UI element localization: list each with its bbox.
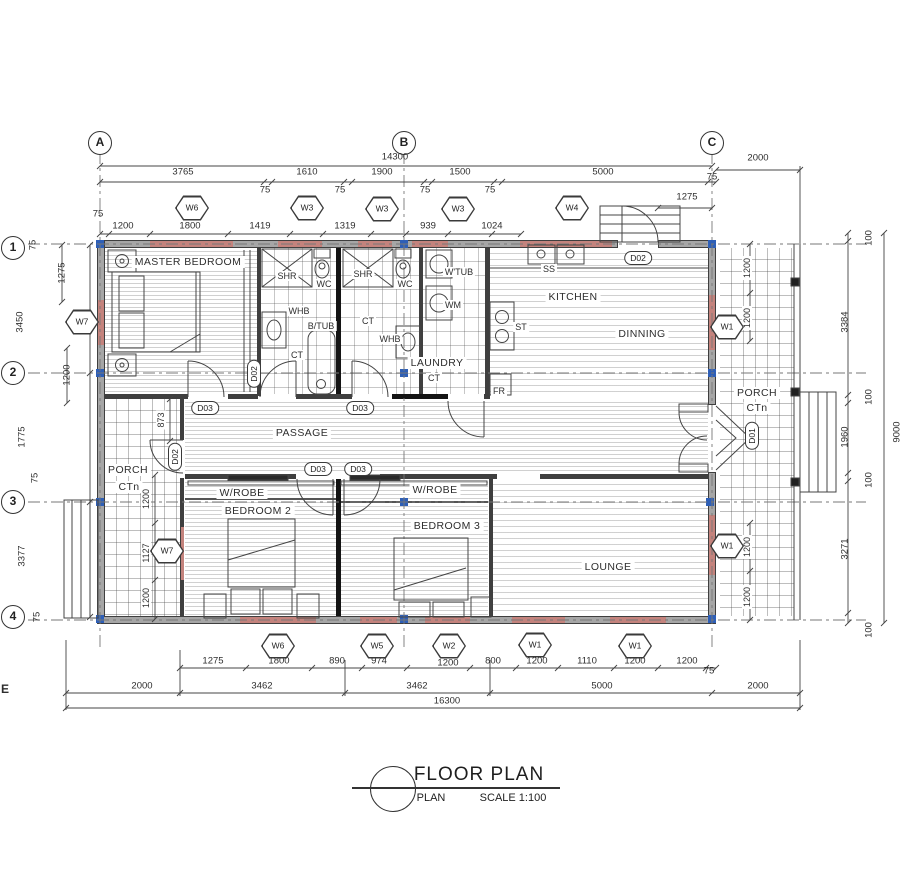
dim-label: 75 <box>28 240 39 251</box>
grid-bubble-4: 4 <box>1 605 25 629</box>
room-label-wrobe3: W/ROBE <box>410 484 461 496</box>
room-label-dinning: DINNING <box>615 328 668 340</box>
fixture-label-whb2: WHB <box>378 334 403 344</box>
dim-label: 1275 <box>57 262 68 283</box>
dim-label: 75 <box>485 185 496 196</box>
entry-steps-top <box>600 206 680 242</box>
kitchen-fixtures <box>490 245 708 395</box>
dim-label: 1200 <box>62 364 73 385</box>
dim-label: 14300 <box>382 152 408 163</box>
dim-label: 1275 <box>202 656 223 667</box>
dim-label: 3377 <box>17 545 28 566</box>
window-tag-w7-left: W7 <box>65 310 99 335</box>
dim-label: 1419 <box>249 221 270 232</box>
fixture-label-wm: WM <box>443 300 463 310</box>
dim-label: 100 <box>864 472 875 488</box>
fixture-label-laundry-ct: CT <box>426 373 442 383</box>
dim-label: 75 <box>93 209 104 220</box>
door-tag-d03-bath: D03 <box>346 401 374 415</box>
dim-label: 1275 <box>676 192 697 203</box>
dim-label: 75 <box>704 666 715 677</box>
dim-label: 75 <box>335 185 346 196</box>
dim-label: 2000 <box>131 681 152 692</box>
dim-label: 5000 <box>592 167 613 178</box>
room-label-passage: PASSAGE <box>273 427 331 439</box>
dim-label: 3384 <box>840 311 851 332</box>
window-tag-w6-top: W6 <box>175 196 209 221</box>
window-tag-w2-bottom: W2 <box>432 634 466 659</box>
dim-label: 1319 <box>334 221 355 232</box>
dim-label: 9000 <box>892 421 903 442</box>
dim-label: 1200 <box>141 586 151 610</box>
fixture-label-st: ST <box>513 322 529 332</box>
fixture-label-wc2: WC <box>396 279 415 289</box>
room-label-bedroom3: BEDROOM 3 <box>411 520 484 532</box>
dim-label: 3271 <box>840 538 851 559</box>
drawing-title: FLOOR PLAN <box>414 764 544 786</box>
window-tag-w1-right-upper: W1 <box>710 315 744 340</box>
fixture-label-fr: FR <box>491 386 507 396</box>
window-tag-label: W3 <box>441 197 475 222</box>
window-tag-label: W6 <box>175 196 209 221</box>
dim-label: 100 <box>864 622 875 638</box>
window-tag-w1a-bottom: W1 <box>518 633 552 658</box>
dim-label: 100 <box>864 230 875 246</box>
door-tag-d03-bedroom2: D03 <box>304 462 332 476</box>
room-label-laundry: LAUNDRY <box>408 357 467 369</box>
door-tag-d03-bedroom3: D03 <box>344 462 372 476</box>
grid-bubble-2: 2 <box>1 361 25 385</box>
window-tag-w3c-top: W3 <box>441 197 475 222</box>
dim-label: 1200 <box>676 656 697 667</box>
dim-label: 75 <box>30 473 41 484</box>
title-underline <box>352 787 560 789</box>
grid-bubble-c: C <box>700 131 724 155</box>
steps-left <box>64 500 98 618</box>
door-tag-d03-master: D03 <box>191 401 219 415</box>
dim-label: 2000 <box>747 681 768 692</box>
grid-bubble-1: 1 <box>1 236 25 260</box>
dim-label: 1610 <box>296 167 317 178</box>
door-tag-d02-entry: D02 <box>624 251 652 265</box>
dim-label: 1200 <box>742 585 752 609</box>
window-tag-label: W2 <box>432 634 466 659</box>
room-label-master-bedroom: MASTER BEDROOM <box>132 256 245 268</box>
drawing-layer <box>0 0 918 880</box>
drawing-scale: SCALE 1:100 <box>480 792 547 804</box>
dim-label: 3450 <box>15 311 26 332</box>
window-tag-w1-right-lower: W1 <box>710 534 744 559</box>
dim-label: 2000 <box>747 153 768 164</box>
edge-label-e: E <box>1 682 9 696</box>
window-tag-label: W7 <box>150 539 184 564</box>
dim-label: 873 <box>156 410 166 429</box>
fixture-label-ct1: CT <box>289 350 305 360</box>
window-tag-w7-porch: W7 <box>150 539 184 564</box>
door-tag-d02-porch: D02 <box>168 443 182 471</box>
dim-label: 1110 <box>577 656 597 667</box>
steps-right <box>800 392 836 492</box>
dimension-lines <box>59 163 887 711</box>
dim-label: 1024 <box>481 221 502 232</box>
room-label-porch-right-ctn: CTn <box>743 402 770 414</box>
dim-label: 1200 <box>112 221 133 232</box>
dimension-ticks <box>59 163 887 711</box>
fixture-label-shr1: SHR <box>275 271 298 281</box>
fixture-label-shr2: SHR <box>351 269 374 279</box>
dim-label: 3765 <box>172 167 193 178</box>
bedroom2-bed <box>204 519 319 618</box>
dim-label: 1900 <box>371 167 392 178</box>
dim-label: 75 <box>32 612 43 623</box>
room-label-wrobe2: W/ROBE <box>217 487 268 499</box>
window-tag-label: W7 <box>65 310 99 335</box>
dim-label: 100 <box>864 389 875 405</box>
window-tag-label: W1 <box>518 633 552 658</box>
dim-label: 75 <box>260 185 271 196</box>
dim-label: 1500 <box>449 167 470 178</box>
window-tag-w1b-bottom: W1 <box>618 634 652 659</box>
window-tag-w5-bottom: W5 <box>360 634 394 659</box>
dim-label: 890 <box>329 656 345 667</box>
door-tag-d01-porch: D01 <box>745 422 759 450</box>
fixture-label-btub: B/TUB <box>306 321 337 331</box>
window-tag-label: W4 <box>555 196 589 221</box>
window-tag-w6-bottom: W6 <box>261 634 295 659</box>
room-label-porch-left: PORCH <box>105 464 151 476</box>
window-tag-w4-top: W4 <box>555 196 589 221</box>
room-label-lounge: LOUNGE <box>582 561 635 573</box>
window-tag-label: W6 <box>261 634 295 659</box>
window-tag-label: W1 <box>710 534 744 559</box>
window-tag-label: W3 <box>290 196 324 221</box>
dim-label: 3462 <box>406 681 427 692</box>
window-tag-label: W5 <box>360 634 394 659</box>
room-label-bedroom2: BEDROOM 2 <box>222 505 295 517</box>
title-circle-icon <box>370 766 416 812</box>
floor-plan-canvas: A B C 1 2 3 4 E 14300 3765 1610 1900 150… <box>0 0 918 880</box>
dim-label: 800 <box>485 656 501 667</box>
grid-bubble-a: A <box>88 131 112 155</box>
fixture-label-wc1: WC <box>315 279 334 289</box>
window-tag-label: W1 <box>618 634 652 659</box>
window-tag-w3a-top: W3 <box>290 196 324 221</box>
dim-label: 1960 <box>840 426 851 447</box>
door-tag-d02-master: D02 <box>247 360 261 388</box>
dim-label: 1200 <box>437 658 458 669</box>
dim-label: 75 <box>420 185 431 196</box>
fixture-label-wtub: W'TUB <box>443 267 475 277</box>
room-label-kitchen: KITCHEN <box>546 291 601 303</box>
window-tag-label: W1 <box>710 315 744 340</box>
dim-label: 75 <box>707 172 718 183</box>
dim-label: 5000 <box>591 681 612 692</box>
room-label-porch-right: PORCH <box>734 387 780 399</box>
window-tag-w3b-top: W3 <box>365 197 399 222</box>
drawing-name: PLAN <box>417 792 446 804</box>
dim-label: 939 <box>420 221 436 232</box>
dim-label: 3462 <box>251 681 272 692</box>
fixture-label-ct2: CT <box>360 316 376 326</box>
dim-label: 1200 <box>742 256 752 280</box>
master-bed <box>108 250 250 392</box>
bedroom3-bed <box>394 538 491 617</box>
grid-bubble-3: 3 <box>1 490 25 514</box>
fixture-label-ss: SS <box>541 264 557 274</box>
dim-label: 1775 <box>17 426 28 447</box>
window-tag-label: W3 <box>365 197 399 222</box>
porch-right-edge <box>791 244 800 620</box>
dim-label: 1800 <box>179 221 200 232</box>
fixture-label-whb1: WHB <box>287 306 312 316</box>
dim-label: 16300 <box>434 696 460 707</box>
room-label-porch-left-ctn: CTn <box>115 481 142 493</box>
